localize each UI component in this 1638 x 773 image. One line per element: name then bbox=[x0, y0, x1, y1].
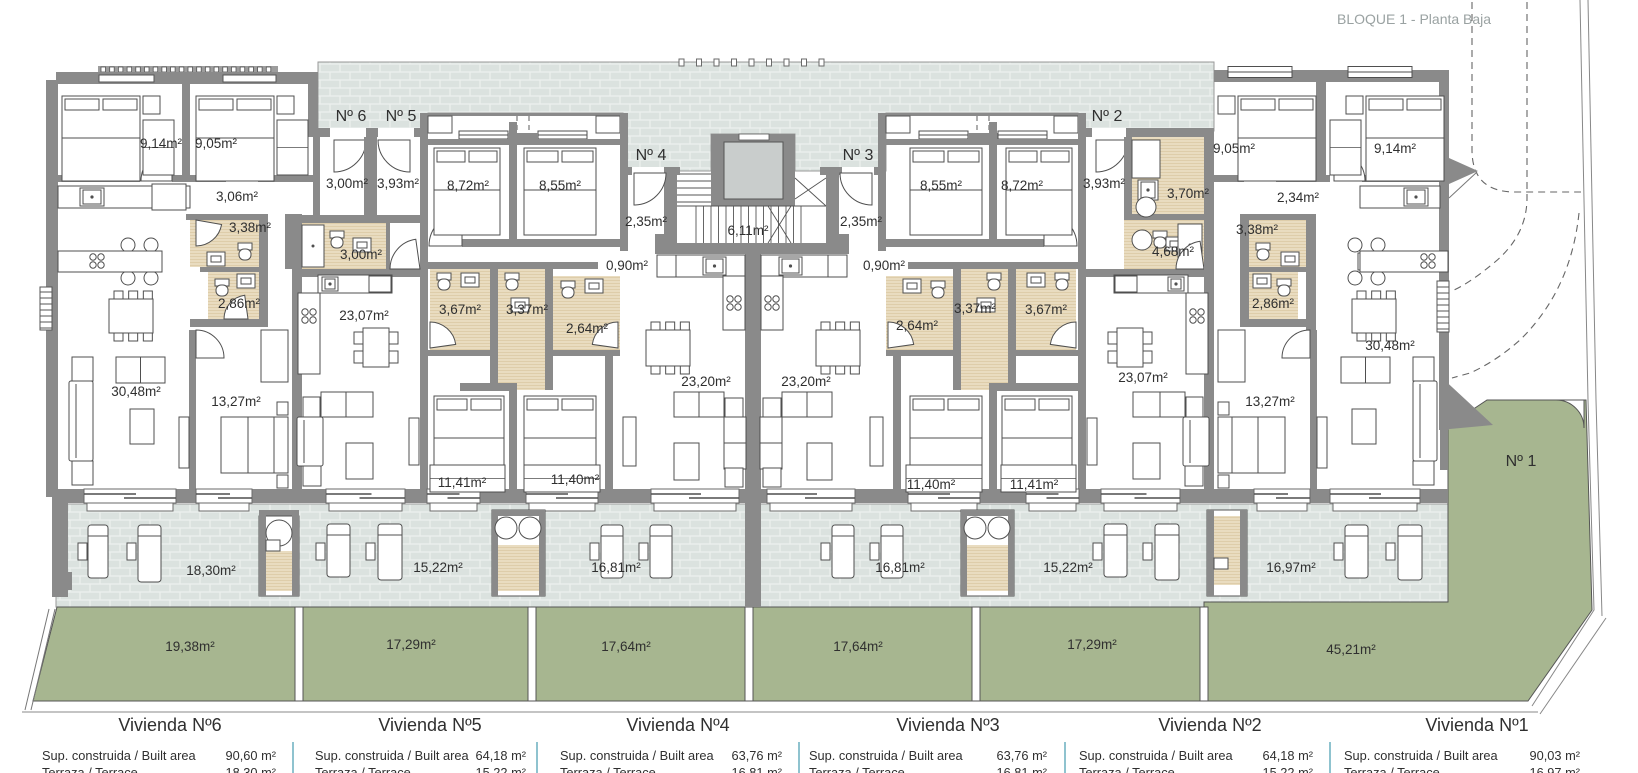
svg-text:Vivienda Nº4: Vivienda Nº4 bbox=[626, 715, 729, 735]
svg-text:11,41m²: 11,41m² bbox=[1010, 477, 1059, 492]
svg-text:BLOQUE 1 - Planta Baja: BLOQUE 1 - Planta Baja bbox=[1337, 11, 1491, 27]
svg-text:3,67m²: 3,67m² bbox=[1025, 302, 1068, 317]
svg-text:6,11m²: 6,11m² bbox=[727, 223, 769, 238]
svg-text:Sup. construida / Built area: Sup. construida / Built area bbox=[1079, 748, 1234, 763]
svg-text:19,38m²: 19,38m² bbox=[165, 639, 215, 654]
svg-text:2,86m²: 2,86m² bbox=[1252, 296, 1295, 311]
svg-text:2,35m²: 2,35m² bbox=[840, 214, 883, 229]
svg-text:15,22 m²: 15,22 m² bbox=[475, 765, 526, 773]
svg-text:3,67m²: 3,67m² bbox=[439, 302, 482, 317]
svg-text:9,14m²: 9,14m² bbox=[1374, 141, 1417, 156]
svg-text:8,55m²: 8,55m² bbox=[920, 178, 963, 193]
svg-text:13,27m²: 13,27m² bbox=[1245, 394, 1295, 409]
svg-text:90,60 m²: 90,60 m² bbox=[225, 748, 276, 763]
svg-text:23,07m²: 23,07m² bbox=[339, 308, 389, 323]
svg-text:15,22m²: 15,22m² bbox=[1043, 560, 1093, 575]
svg-text:3,38m²: 3,38m² bbox=[229, 220, 272, 235]
svg-text:Terraza / Terrace: Terraza / Terrace bbox=[42, 765, 138, 773]
svg-text:13,27m²: 13,27m² bbox=[211, 394, 261, 409]
svg-text:Terraza / Terrace: Terraza / Terrace bbox=[315, 765, 411, 773]
svg-text:9,14m²: 9,14m² bbox=[140, 136, 183, 151]
svg-text:3,37m²: 3,37m² bbox=[954, 301, 997, 316]
svg-text:0,90m²: 0,90m² bbox=[606, 258, 649, 273]
svg-text:0,90m²: 0,90m² bbox=[863, 258, 906, 273]
svg-text:3,38m²: 3,38m² bbox=[1236, 222, 1279, 237]
svg-text:Terraza / Terrace: Terraza / Terrace bbox=[1079, 765, 1175, 773]
svg-text:8,72m²: 8,72m² bbox=[447, 178, 490, 193]
svg-text:90,03 m²: 90,03 m² bbox=[1529, 748, 1580, 763]
svg-text:16,81m²: 16,81m² bbox=[875, 560, 925, 575]
svg-text:9,05m²: 9,05m² bbox=[195, 136, 238, 151]
svg-text:4,68m²: 4,68m² bbox=[1152, 244, 1195, 259]
svg-text:3,93m²: 3,93m² bbox=[377, 176, 420, 191]
svg-text:3,37m²: 3,37m² bbox=[506, 302, 549, 317]
svg-text:Nº 4: Nº 4 bbox=[636, 147, 667, 164]
svg-text:Nº 3: Nº 3 bbox=[843, 147, 874, 164]
svg-text:63,76 m²: 63,76 m² bbox=[996, 748, 1047, 763]
svg-text:16,81 m²: 16,81 m² bbox=[731, 765, 782, 773]
svg-text:17,64m²: 17,64m² bbox=[601, 639, 651, 654]
svg-text:Sup. construida / Built area: Sup. construida / Built area bbox=[42, 748, 197, 763]
svg-text:18,30 m²: 18,30 m² bbox=[225, 765, 276, 773]
svg-text:2,86m²: 2,86m² bbox=[218, 296, 261, 311]
svg-text:15,22m²: 15,22m² bbox=[413, 560, 463, 575]
svg-text:16,97m²: 16,97m² bbox=[1266, 560, 1316, 575]
svg-text:Terraza / Terrace: Terraza / Terrace bbox=[809, 765, 905, 773]
svg-text:Vivienda Nº5: Vivienda Nº5 bbox=[378, 715, 481, 735]
svg-text:Terraza / Terrace: Terraza / Terrace bbox=[1344, 765, 1440, 773]
svg-text:16,81m²: 16,81m² bbox=[591, 560, 641, 575]
svg-text:3,00m²: 3,00m² bbox=[340, 247, 383, 262]
svg-text:64,18 m²: 64,18 m² bbox=[1262, 748, 1313, 763]
svg-text:63,76 m²: 63,76 m² bbox=[731, 748, 782, 763]
svg-text:11,40m²: 11,40m² bbox=[551, 472, 600, 487]
svg-text:23,20m²: 23,20m² bbox=[781, 374, 831, 389]
svg-text:Sup. construida / Built area: Sup. construida / Built area bbox=[560, 748, 715, 763]
svg-text:Terraza / Terrace: Terraza / Terrace bbox=[560, 765, 656, 773]
svg-text:Nº 5: Nº 5 bbox=[386, 108, 417, 125]
svg-text:2,64m²: 2,64m² bbox=[566, 321, 609, 336]
svg-text:23,20m²: 23,20m² bbox=[681, 374, 731, 389]
svg-text:3,00m²: 3,00m² bbox=[326, 176, 369, 191]
svg-text:Vivienda Nº6: Vivienda Nº6 bbox=[118, 715, 221, 735]
svg-text:3,93m²: 3,93m² bbox=[1083, 176, 1126, 191]
svg-text:18,30m²: 18,30m² bbox=[186, 563, 236, 578]
svg-text:8,55m²: 8,55m² bbox=[539, 178, 582, 193]
svg-text:Sup. construida / Built area: Sup. construida / Built area bbox=[1344, 748, 1499, 763]
svg-text:30,48m²: 30,48m² bbox=[111, 384, 161, 399]
svg-text:15,22 m²: 15,22 m² bbox=[1262, 765, 1313, 773]
svg-text:64,18 m²: 64,18 m² bbox=[475, 748, 526, 763]
svg-text:Sup. construida / Built area: Sup. construida / Built area bbox=[315, 748, 470, 763]
svg-text:8,72m²: 8,72m² bbox=[1001, 178, 1044, 193]
svg-text:17,29m²: 17,29m² bbox=[386, 637, 436, 652]
svg-text:16,81 m²: 16,81 m² bbox=[996, 765, 1047, 773]
svg-text:11,40m²: 11,40m² bbox=[907, 477, 956, 492]
svg-text:9,05m²: 9,05m² bbox=[1213, 141, 1256, 156]
svg-text:Vivienda Nº3: Vivienda Nº3 bbox=[896, 715, 999, 735]
svg-text:Vivienda Nº2: Vivienda Nº2 bbox=[1158, 715, 1261, 735]
svg-text:Nº 2: Nº 2 bbox=[1092, 108, 1123, 125]
svg-text:Sup. construida / Built area: Sup. construida / Built area bbox=[809, 748, 964, 763]
svg-text:3,06m²: 3,06m² bbox=[216, 189, 259, 204]
svg-text:2,35m²: 2,35m² bbox=[625, 214, 668, 229]
svg-text:17,64m²: 17,64m² bbox=[833, 639, 883, 654]
svg-text:11,41m²: 11,41m² bbox=[438, 475, 487, 490]
svg-text:Nº 1: Nº 1 bbox=[1506, 453, 1537, 470]
svg-text:2,34m²: 2,34m² bbox=[1277, 190, 1320, 205]
svg-text:Nº 6: Nº 6 bbox=[336, 108, 367, 125]
svg-text:23,07m²: 23,07m² bbox=[1118, 370, 1168, 385]
svg-text:16,97 m²: 16,97 m² bbox=[1529, 765, 1580, 773]
svg-text:17,29m²: 17,29m² bbox=[1067, 637, 1117, 652]
svg-text:2,64m²: 2,64m² bbox=[896, 318, 939, 333]
svg-text:30,48m²: 30,48m² bbox=[1365, 338, 1415, 353]
svg-text:Vivienda Nº1: Vivienda Nº1 bbox=[1425, 715, 1528, 735]
svg-text:3,70m²: 3,70m² bbox=[1167, 186, 1210, 201]
svg-text:45,21m²: 45,21m² bbox=[1326, 642, 1376, 657]
